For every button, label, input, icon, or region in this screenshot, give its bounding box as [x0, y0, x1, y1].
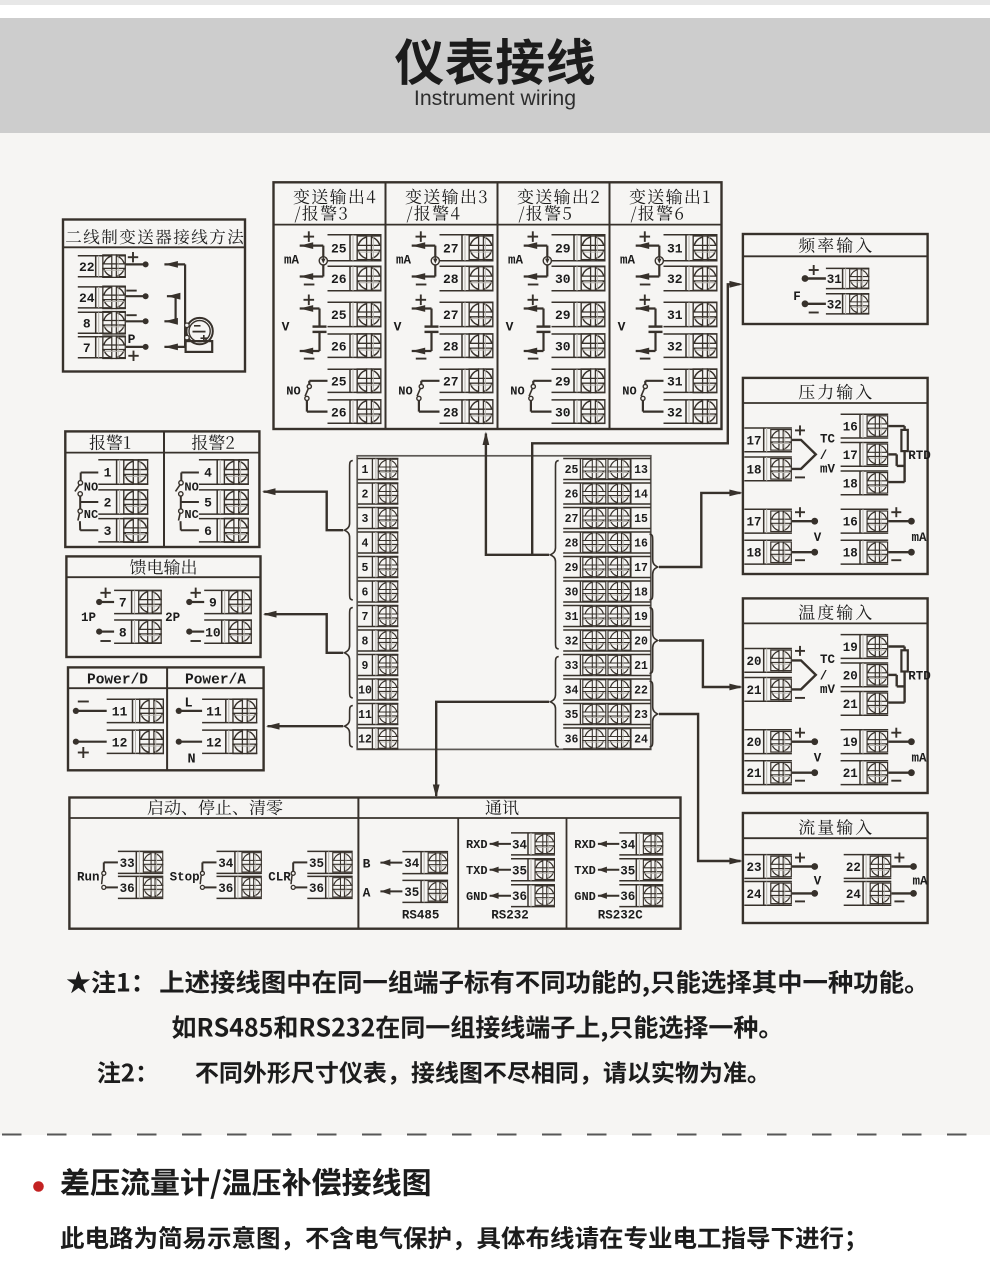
svg-text:RS485: RS485	[402, 908, 440, 922]
svg-text:Stop: Stop	[170, 871, 200, 885]
svg-text:34: 34	[218, 857, 234, 871]
svg-text:22: 22	[79, 260, 95, 275]
svg-text:30: 30	[565, 587, 579, 600]
svg-text:4: 4	[362, 538, 369, 551]
svg-text:13: 13	[634, 464, 648, 477]
svg-text:27: 27	[443, 242, 459, 257]
svg-text:29: 29	[565, 562, 579, 575]
svg-text:21: 21	[634, 660, 648, 673]
svg-text:Run: Run	[77, 871, 100, 885]
svg-text:RXD: RXD	[574, 838, 596, 852]
svg-text:27: 27	[443, 375, 459, 390]
svg-text:6: 6	[362, 587, 369, 600]
svg-text:26: 26	[565, 489, 579, 502]
svg-text:TC: TC	[820, 432, 836, 446]
svg-text:V: V	[506, 320, 514, 335]
svg-text:10: 10	[205, 625, 221, 640]
svg-text:A: A	[363, 885, 371, 900]
svg-text:8: 8	[362, 636, 369, 649]
svg-text:32: 32	[667, 339, 683, 354]
svg-text:21: 21	[843, 767, 858, 781]
svg-text:36: 36	[218, 882, 233, 896]
svg-text:10: 10	[358, 685, 372, 698]
svg-text:26: 26	[331, 272, 347, 287]
svg-text:18: 18	[746, 547, 761, 561]
svg-text:CLR: CLR	[268, 871, 291, 885]
svg-text:Power/D: Power/D	[87, 673, 148, 689]
svg-text:V: V	[814, 531, 822, 545]
svg-text:15: 15	[634, 513, 648, 526]
svg-text:29: 29	[555, 375, 571, 390]
svg-text:V: V	[394, 320, 402, 335]
svg-text:16: 16	[634, 538, 648, 551]
svg-text:RXD: RXD	[466, 838, 488, 852]
svg-text:14: 14	[634, 489, 648, 502]
svg-text:B: B	[363, 857, 371, 872]
svg-text:34: 34	[512, 838, 528, 852]
svg-text:30: 30	[555, 272, 571, 287]
svg-text:25: 25	[331, 375, 347, 390]
svg-text:35: 35	[565, 709, 579, 722]
svg-text:RS232: RS232	[491, 908, 529, 922]
svg-text:1P: 1P	[81, 611, 96, 625]
svg-text:GND: GND	[574, 890, 596, 904]
svg-text:9: 9	[362, 660, 369, 673]
svg-text:18: 18	[634, 587, 648, 600]
svg-text:28: 28	[443, 339, 459, 354]
svg-text:8: 8	[119, 625, 127, 640]
svg-text:TXD: TXD	[574, 864, 596, 878]
svg-text:31: 31	[565, 611, 579, 624]
svg-text:35: 35	[620, 864, 635, 878]
svg-text:26: 26	[331, 405, 347, 420]
svg-text:V: V	[814, 875, 822, 889]
svg-text:32: 32	[565, 636, 579, 649]
svg-text:31: 31	[667, 308, 683, 323]
svg-text:9: 9	[209, 596, 217, 611]
svg-text:mV: mV	[820, 683, 836, 697]
svg-text:Power/A: Power/A	[185, 673, 246, 689]
svg-text:NO: NO	[286, 384, 300, 398]
svg-text:27: 27	[443, 308, 459, 323]
svg-text:6: 6	[204, 524, 212, 539]
svg-text:30: 30	[555, 405, 571, 420]
svg-text:21: 21	[746, 684, 761, 698]
svg-text:19: 19	[843, 641, 858, 655]
svg-text:1: 1	[362, 464, 369, 477]
svg-text:7: 7	[83, 341, 91, 356]
svg-text:Instrument wiring: Instrument wiring	[414, 86, 576, 110]
svg-text:mA: mA	[911, 752, 927, 766]
svg-text:8: 8	[83, 317, 91, 332]
svg-text:18: 18	[746, 463, 761, 477]
svg-text:19: 19	[843, 736, 858, 750]
svg-text:23: 23	[746, 861, 761, 875]
svg-text:NO: NO	[398, 384, 412, 398]
svg-text:mA: mA	[396, 254, 412, 268]
svg-text:29: 29	[555, 308, 571, 323]
svg-text:12: 12	[206, 735, 222, 750]
svg-text:mA: mA	[284, 254, 300, 268]
svg-text:NC: NC	[184, 508, 198, 522]
svg-text:33: 33	[565, 660, 579, 673]
svg-text:28: 28	[565, 538, 579, 551]
svg-text:3: 3	[362, 513, 369, 526]
svg-text:36: 36	[565, 734, 579, 747]
svg-text:V: V	[814, 752, 822, 766]
svg-text:2: 2	[104, 496, 112, 511]
svg-text:2P: 2P	[165, 611, 180, 625]
svg-text:/: /	[820, 449, 828, 463]
svg-text:4: 4	[204, 466, 212, 481]
svg-text:35: 35	[512, 864, 527, 878]
svg-text:25: 25	[565, 464, 579, 477]
svg-text:NO: NO	[84, 481, 98, 495]
svg-text:TXD: TXD	[466, 864, 488, 878]
svg-text:36: 36	[512, 890, 527, 904]
svg-text:31: 31	[667, 242, 683, 257]
svg-text:34: 34	[404, 857, 420, 871]
svg-text:16: 16	[843, 421, 858, 435]
svg-text:18: 18	[843, 477, 858, 491]
svg-text:35: 35	[309, 857, 324, 871]
svg-text:34: 34	[620, 838, 636, 852]
svg-text:NO: NO	[510, 384, 524, 398]
svg-text:17: 17	[746, 516, 761, 530]
svg-text:28: 28	[443, 272, 459, 287]
svg-text:25: 25	[331, 308, 347, 323]
svg-text:34: 34	[565, 685, 579, 698]
svg-text:24: 24	[746, 888, 762, 902]
svg-text:20: 20	[746, 655, 761, 669]
svg-text:7: 7	[119, 596, 127, 611]
svg-text:24: 24	[79, 291, 95, 306]
svg-text:11: 11	[206, 705, 222, 720]
svg-text:21: 21	[843, 698, 858, 712]
svg-text:TC: TC	[820, 653, 836, 667]
svg-text:mA: mA	[620, 254, 636, 268]
svg-text:30: 30	[555, 339, 571, 354]
svg-text:36: 36	[620, 890, 635, 904]
svg-text:24: 24	[634, 734, 648, 747]
svg-text:12: 12	[112, 735, 128, 750]
svg-text:V: V	[618, 320, 626, 335]
svg-text:mA: mA	[912, 875, 928, 889]
svg-text:5: 5	[204, 496, 212, 511]
svg-text:31: 31	[667, 375, 683, 390]
svg-text:17: 17	[746, 434, 761, 448]
svg-text:17: 17	[634, 562, 648, 575]
svg-text:1: 1	[104, 466, 112, 481]
svg-text:19: 19	[634, 611, 648, 624]
svg-text:22: 22	[634, 685, 648, 698]
svg-text:25: 25	[331, 242, 347, 257]
svg-text:NC: NC	[84, 508, 98, 522]
svg-text:29: 29	[555, 242, 571, 257]
svg-text:RTD: RTD	[908, 669, 931, 683]
svg-text:20: 20	[843, 669, 858, 683]
svg-text:L: L	[184, 697, 192, 712]
svg-text:16: 16	[843, 516, 858, 530]
svg-text:32: 32	[667, 405, 683, 420]
svg-text:12: 12	[358, 734, 372, 747]
svg-text:F: F	[793, 290, 801, 304]
svg-text:17: 17	[843, 449, 858, 463]
svg-text:22: 22	[846, 861, 861, 875]
svg-text:RTD: RTD	[908, 449, 931, 463]
svg-text:5: 5	[362, 562, 369, 575]
svg-text:P: P	[128, 332, 136, 347]
svg-text:11: 11	[112, 705, 128, 720]
svg-text:20: 20	[634, 636, 648, 649]
svg-text:N: N	[187, 753, 195, 768]
svg-text:18: 18	[843, 547, 858, 561]
svg-text:32: 32	[827, 298, 842, 312]
svg-text:2: 2	[362, 489, 369, 502]
svg-text:mA: mA	[508, 254, 524, 268]
svg-text:28: 28	[443, 405, 459, 420]
svg-text:NO: NO	[184, 481, 198, 495]
svg-text:36: 36	[120, 882, 135, 896]
svg-text:35: 35	[404, 886, 419, 900]
svg-text:V: V	[282, 320, 290, 335]
svg-text:24: 24	[846, 888, 862, 902]
svg-text:/: /	[820, 669, 828, 683]
svg-text:23: 23	[634, 709, 648, 722]
svg-text:27: 27	[565, 513, 579, 526]
svg-text:NO: NO	[622, 384, 636, 398]
svg-text:33: 33	[120, 857, 135, 871]
svg-text:3: 3	[104, 524, 112, 539]
svg-text:31: 31	[827, 273, 842, 287]
svg-text:26: 26	[331, 339, 347, 354]
svg-text:GND: GND	[466, 890, 488, 904]
svg-text:7: 7	[362, 611, 369, 624]
svg-text:36: 36	[309, 882, 324, 896]
svg-text:21: 21	[746, 767, 761, 781]
svg-text:11: 11	[358, 709, 372, 722]
svg-text:RS232C: RS232C	[598, 908, 644, 922]
svg-text:mA: mA	[911, 531, 927, 545]
svg-text:20: 20	[746, 736, 761, 750]
svg-text:mV: mV	[820, 462, 836, 476]
svg-text:32: 32	[667, 272, 683, 287]
